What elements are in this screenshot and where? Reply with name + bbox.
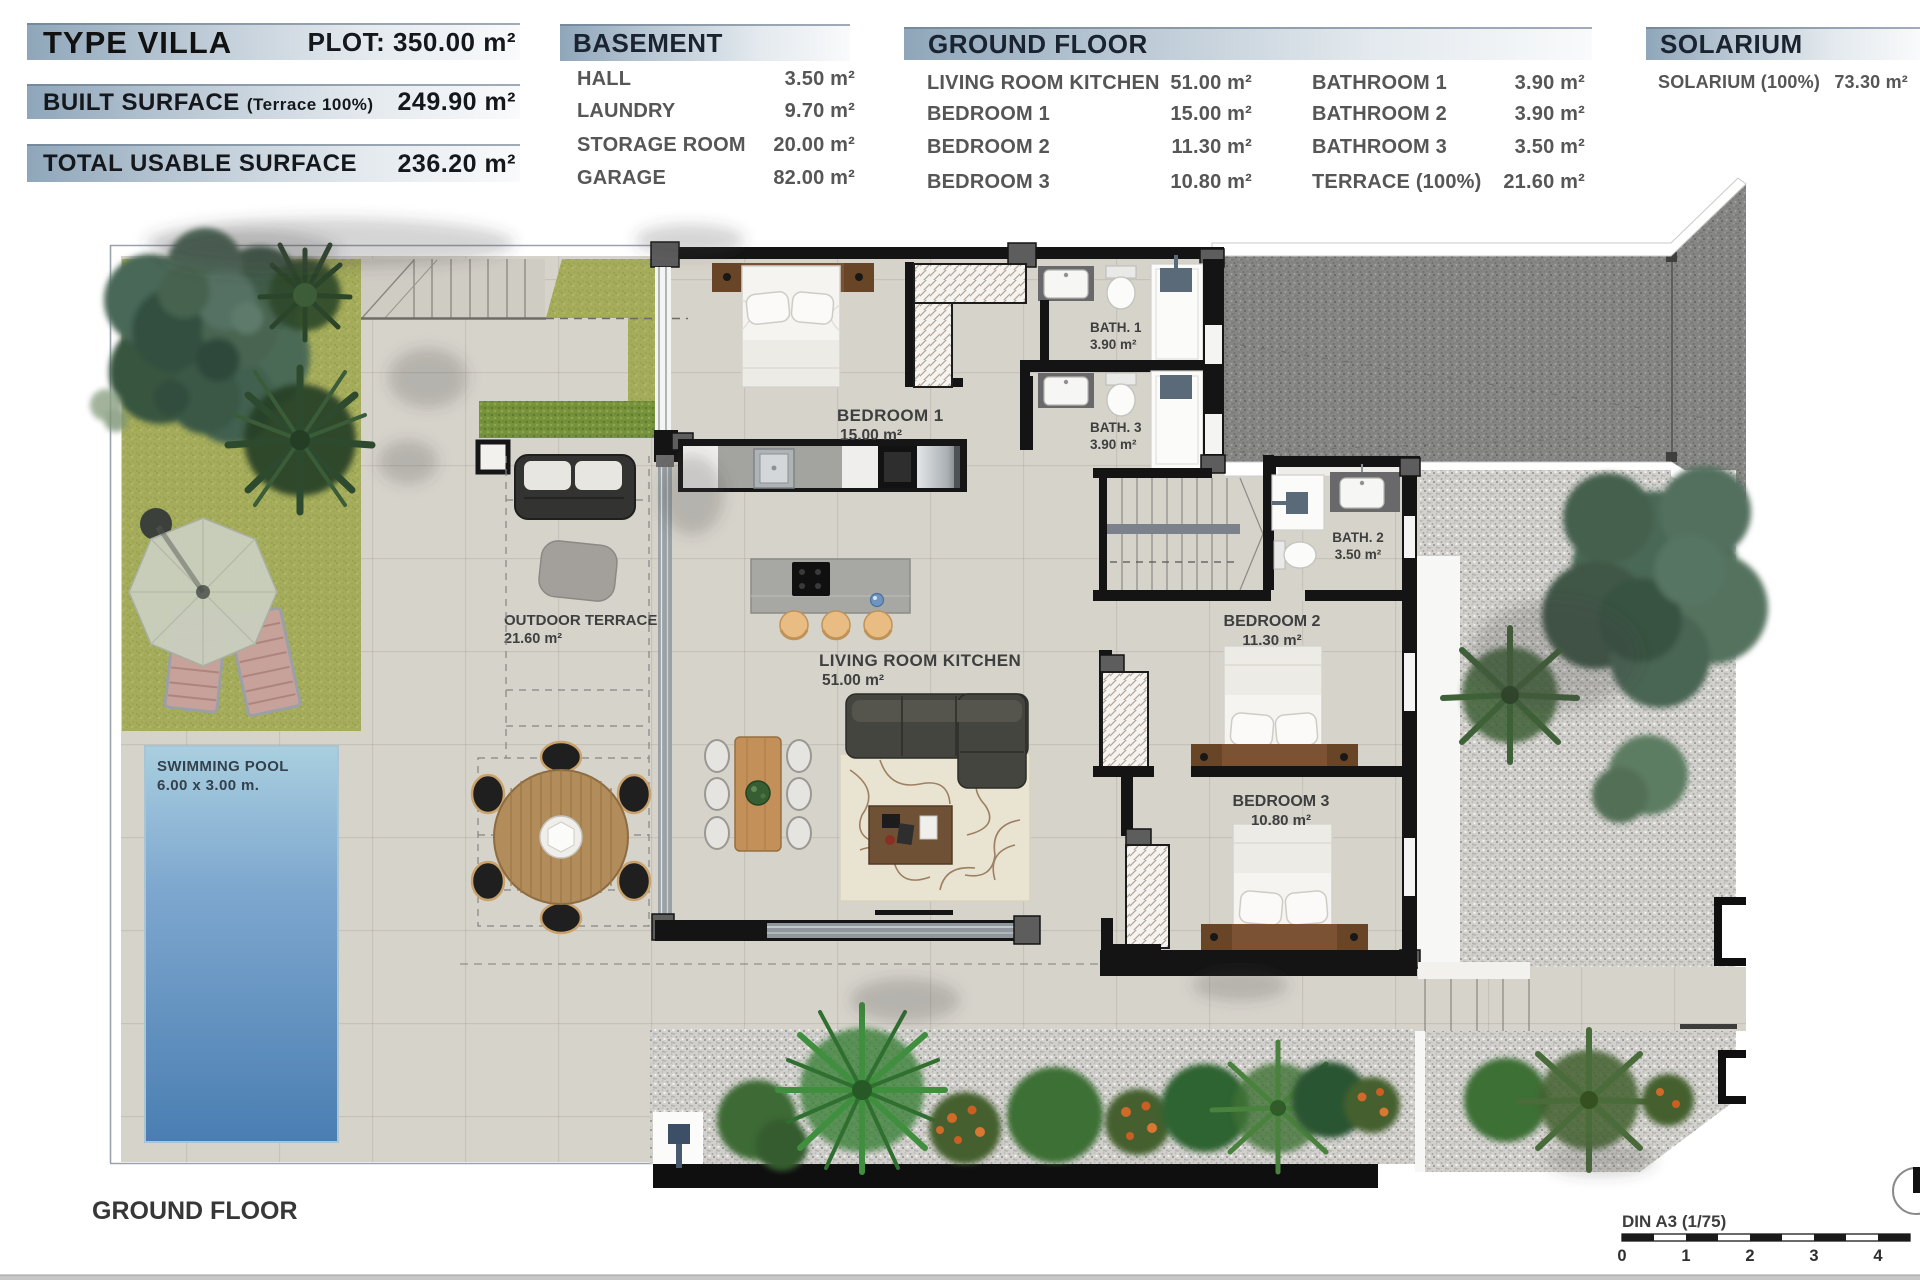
svg-text:BATH. 3: BATH. 3 [1090,420,1142,435]
svg-text:2: 2 [1745,1247,1754,1265]
svg-text:11.30 m²: 11.30 m² [1242,632,1301,649]
svg-text:LIVING ROOM KITCHEN: LIVING ROOM KITCHEN [819,651,1021,670]
svg-text:3.90 m²: 3.90 m² [1090,437,1137,452]
svg-text:4: 4 [1873,1247,1883,1265]
svg-text:3.90 m²: 3.90 m² [1090,337,1137,352]
svg-text:15.00 m²: 15.00 m² [840,427,902,444]
svg-text:21.60 m²: 21.60 m² [504,631,562,647]
svg-text:1: 1 [1681,1247,1690,1265]
svg-text:BATH. 2: BATH. 2 [1332,530,1384,545]
svg-text:OUTDOOR TERRACE: OUTDOOR TERRACE [504,612,657,629]
svg-text:10.80 m²: 10.80 m² [1251,812,1311,829]
svg-text:3.50 m²: 3.50 m² [1335,547,1382,562]
svg-text:BEDROOM 3: BEDROOM 3 [1233,793,1330,810]
svg-text:BEDROOM 1: BEDROOM 1 [837,406,944,425]
svg-text:SWIMMING POOL: SWIMMING POOL [157,758,289,775]
svg-text:3: 3 [1809,1247,1818,1265]
svg-text:BATH. 1: BATH. 1 [1090,320,1142,335]
svg-text:BEDROOM 2: BEDROOM 2 [1224,613,1321,630]
svg-text:0: 0 [1617,1247,1626,1265]
svg-text:6.00 x 3.00 m.: 6.00 x 3.00 m. [157,777,259,794]
svg-text:51.00 m²: 51.00 m² [822,672,884,689]
